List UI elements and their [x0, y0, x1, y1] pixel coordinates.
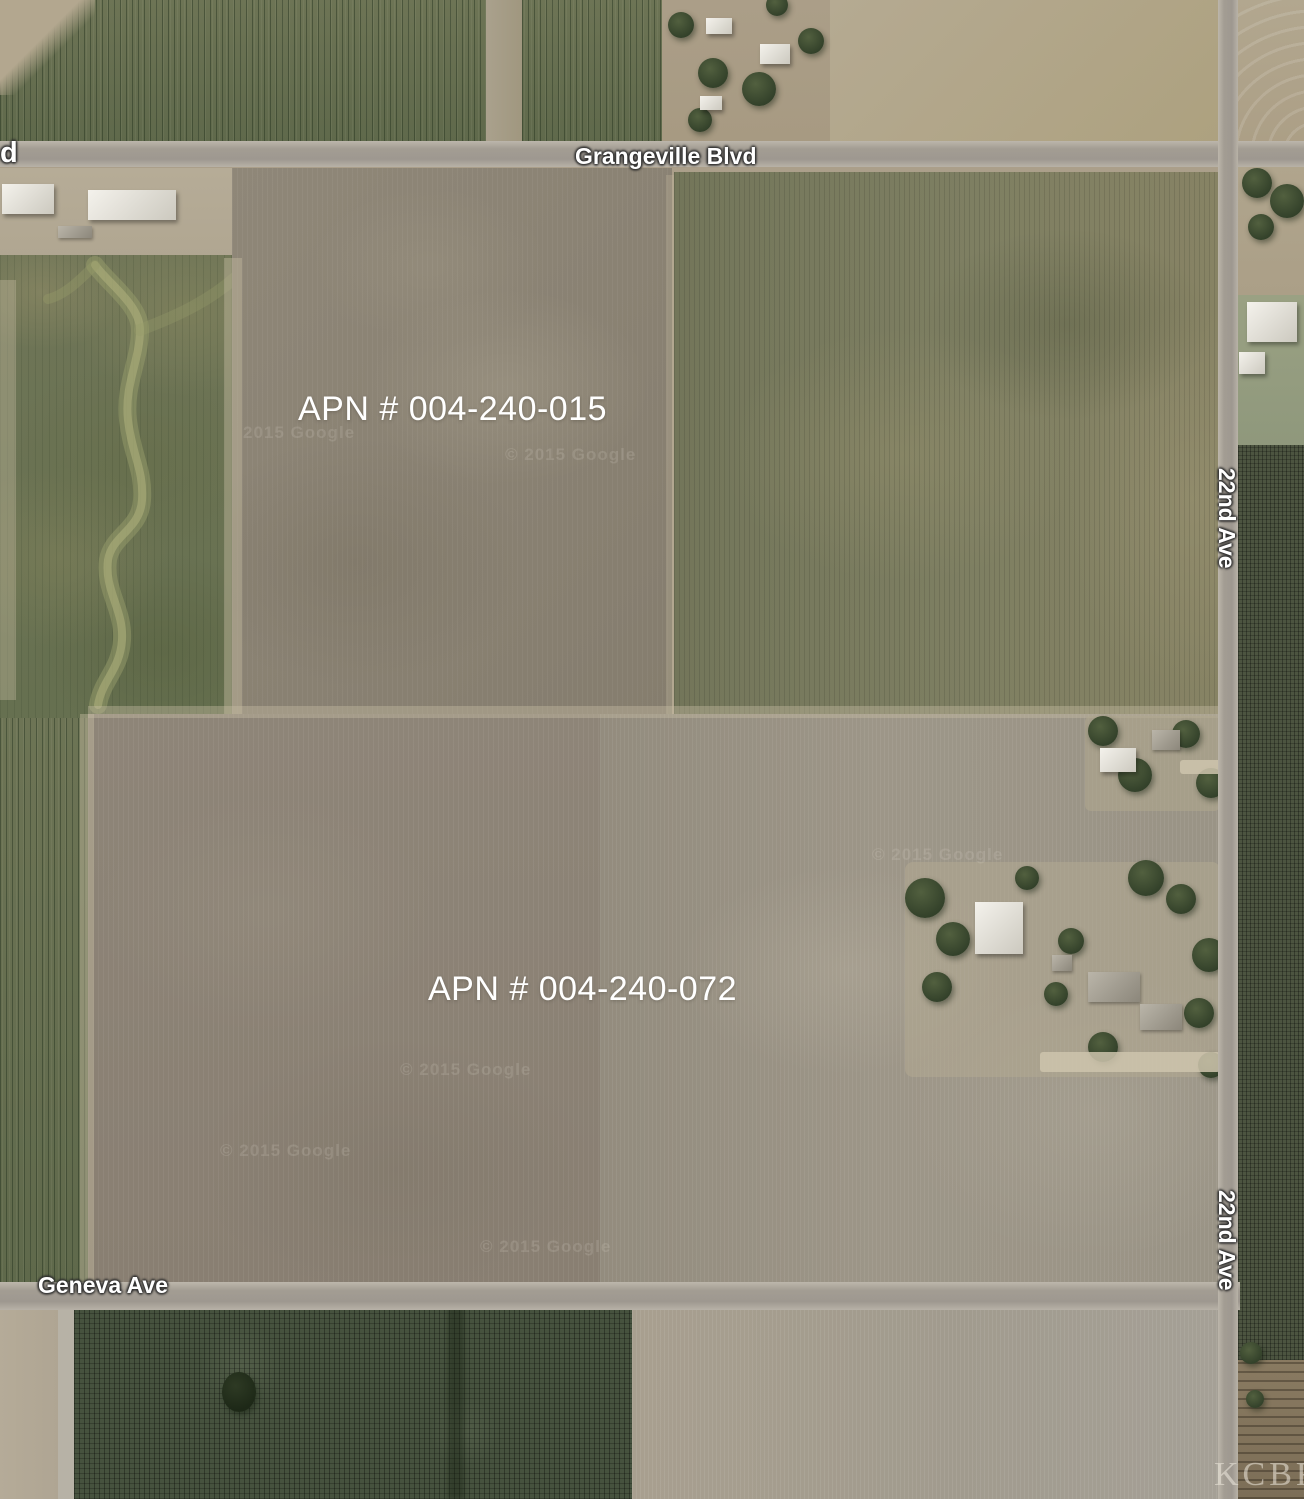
tree [222, 1372, 256, 1412]
contour-field-top-right [1238, 0, 1304, 142]
apn-label-004-240-072: APN # 004-240-072 [428, 970, 737, 1009]
parcel-margin [224, 258, 242, 716]
road-label-geneva-ave: Geneva Ave [38, 1272, 168, 1299]
dirt-wedge-top-left [0, 0, 95, 95]
house [1100, 748, 1136, 772]
shed [1152, 730, 1180, 750]
google-watermark: © 2015 Google [505, 445, 636, 465]
farm-track-bottom [58, 1308, 74, 1499]
farm-building [1239, 352, 1265, 374]
farm-track-top [486, 0, 522, 142]
farm-building [706, 18, 732, 34]
driveway [1040, 1052, 1220, 1072]
bare-field-top [830, 0, 1220, 142]
tree [1088, 716, 1118, 746]
tree [1248, 214, 1274, 240]
road-label-22nd-ave-lower: 22nd Ave [1213, 1190, 1240, 1291]
farm-building [975, 902, 1023, 954]
orchard-east [1238, 445, 1304, 1360]
tree [1242, 168, 1272, 198]
tree [1246, 1390, 1264, 1408]
parcel-margin [88, 706, 1220, 718]
shed [1140, 1004, 1182, 1030]
road-label-grangeville-blvd: Grangeville Blvd [575, 143, 757, 170]
farm-building [700, 96, 722, 110]
tree [668, 12, 694, 38]
farm-building [1247, 302, 1297, 342]
bare-field-bottom-right [632, 1308, 1220, 1499]
tree [1166, 884, 1196, 914]
road-label-partial-left: d [0, 137, 18, 170]
tree [1240, 1342, 1262, 1364]
google-watermark: © 2015 Google [872, 845, 1003, 865]
shed [1088, 972, 1140, 1002]
crop-strip-left [0, 718, 88, 1284]
tree [1044, 982, 1068, 1006]
google-watermark: © 2015 Google [220, 1141, 351, 1161]
crop-field-top-middle [522, 0, 662, 142]
tree [922, 972, 952, 1002]
road-geneva-ave [0, 1282, 1240, 1310]
creek-channel [40, 255, 240, 720]
parcel-margin [80, 714, 94, 1284]
bare-strip-bottom-left [0, 1308, 58, 1499]
trailer [2, 184, 54, 214]
tree [742, 72, 776, 106]
tree [905, 878, 945, 918]
road-label-22nd-ave-upper: 22nd Ave [1213, 468, 1240, 569]
tree-line [448, 1308, 464, 1499]
tree [688, 108, 712, 132]
parcel-margin [666, 175, 674, 715]
satellite-map-canvas: Grangeville Blvd d 22nd Ave 22nd Ave Gen… [0, 0, 1304, 1499]
kcbr-watermark: KCBR [1214, 1456, 1304, 1494]
trailer [88, 190, 176, 220]
orchard-bottom [74, 1308, 632, 1499]
tree [1184, 998, 1214, 1028]
google-watermark: © 2015 Google [400, 1060, 531, 1080]
tree [798, 28, 824, 54]
field-edge-strip [0, 280, 16, 700]
farm-building [760, 44, 790, 64]
google-watermark: © 2015 Google [480, 1237, 611, 1257]
equipment [58, 226, 92, 238]
crop-field-olive [674, 172, 1220, 716]
tree [1058, 928, 1084, 954]
tree [1015, 866, 1039, 890]
shed [1052, 955, 1072, 971]
tree [698, 58, 728, 88]
tree [1270, 184, 1304, 218]
tree [1128, 860, 1164, 896]
google-watermark: 2015 Google [243, 423, 355, 443]
tree [936, 922, 970, 956]
